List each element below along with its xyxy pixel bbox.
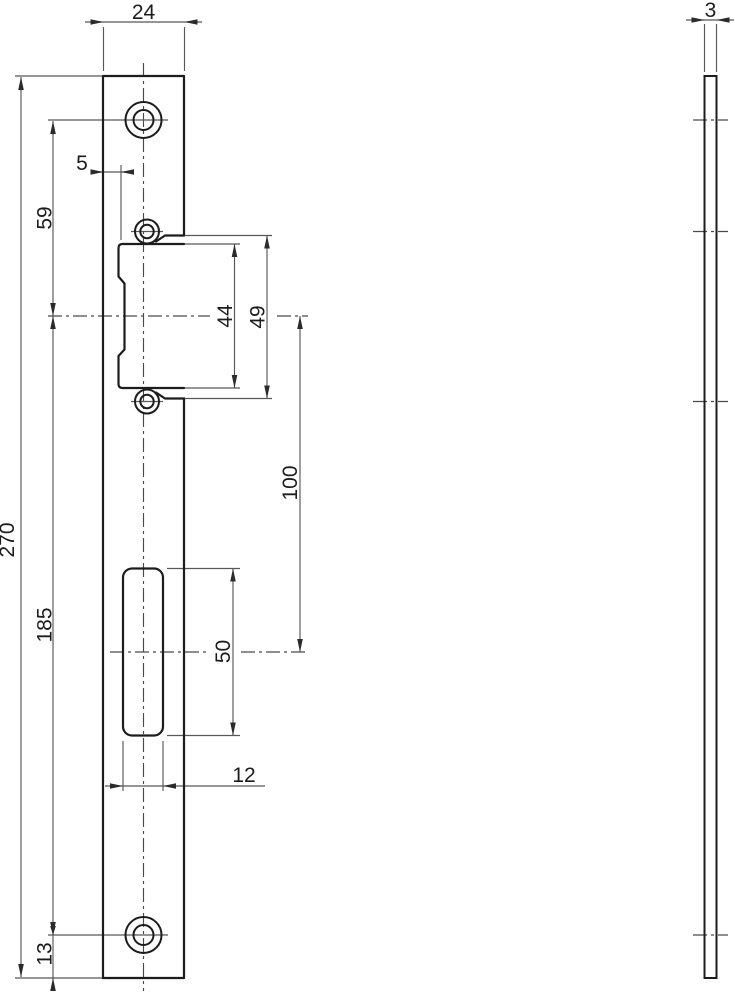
dim-latch-to-bottom-hole: 185 — [34, 607, 57, 642]
dim-cutout-height: 49 — [247, 305, 270, 328]
dimension-lines — [15, 20, 734, 991]
centerlines — [48, 63, 728, 991]
dim-thickness: 3 — [705, 0, 717, 22]
arrow — [50, 316, 56, 329]
arrow — [185, 19, 198, 25]
arrow — [230, 723, 236, 736]
dim-hole-to-latch: 59 — [34, 206, 57, 229]
arrow — [692, 17, 705, 23]
arrow — [50, 303, 56, 316]
dim-window-height: 44 — [214, 304, 237, 328]
dim-slot-width: 12 — [232, 764, 255, 787]
dim-total-length: 270 — [0, 522, 19, 557]
arrow — [91, 19, 104, 25]
dim-bottom-margin: 13 — [34, 942, 57, 965]
arrow — [232, 244, 238, 257]
arrow — [50, 121, 56, 134]
dim-centers-distance: 100 — [279, 465, 302, 500]
latch-cutout-ledge-top — [156, 236, 184, 242]
arrow — [18, 964, 24, 977]
arrow — [717, 17, 730, 23]
length-ext-lines — [15, 76, 102, 978]
arrow — [264, 236, 270, 249]
arrow — [232, 375, 238, 388]
dimension-labels: 24 3 5 12 59 270 185 13 44 49 100 50 — [0, 0, 716, 966]
arrow — [50, 926, 56, 935]
arrow — [121, 169, 134, 175]
strike-plate-drawing: 24 3 5 12 59 270 185 13 44 49 100 50 — [0, 0, 735, 1000]
arrow — [18, 77, 24, 90]
arrow — [91, 169, 104, 175]
arrow — [50, 978, 56, 991]
dim-slot-height: 50 — [212, 640, 235, 663]
arrow — [163, 783, 176, 789]
latch-cutout-ledge-bottom — [156, 393, 184, 399]
arrow — [297, 316, 303, 329]
side-view — [705, 76, 717, 978]
drawing-canvas: 24 3 5 12 59 270 185 13 44 49 100 50 — [0, 0, 735, 1000]
side-view-plate — [705, 76, 717, 978]
dim-plate-width: 24 — [132, 1, 156, 24]
arrow — [110, 783, 123, 789]
arrow — [264, 386, 270, 399]
thickness-ext-lines — [705, 24, 717, 72]
arrow — [297, 639, 303, 652]
dimension-arrowheads — [18, 17, 729, 991]
dim-lip-offset: 5 — [76, 152, 88, 175]
arrow — [230, 569, 236, 582]
